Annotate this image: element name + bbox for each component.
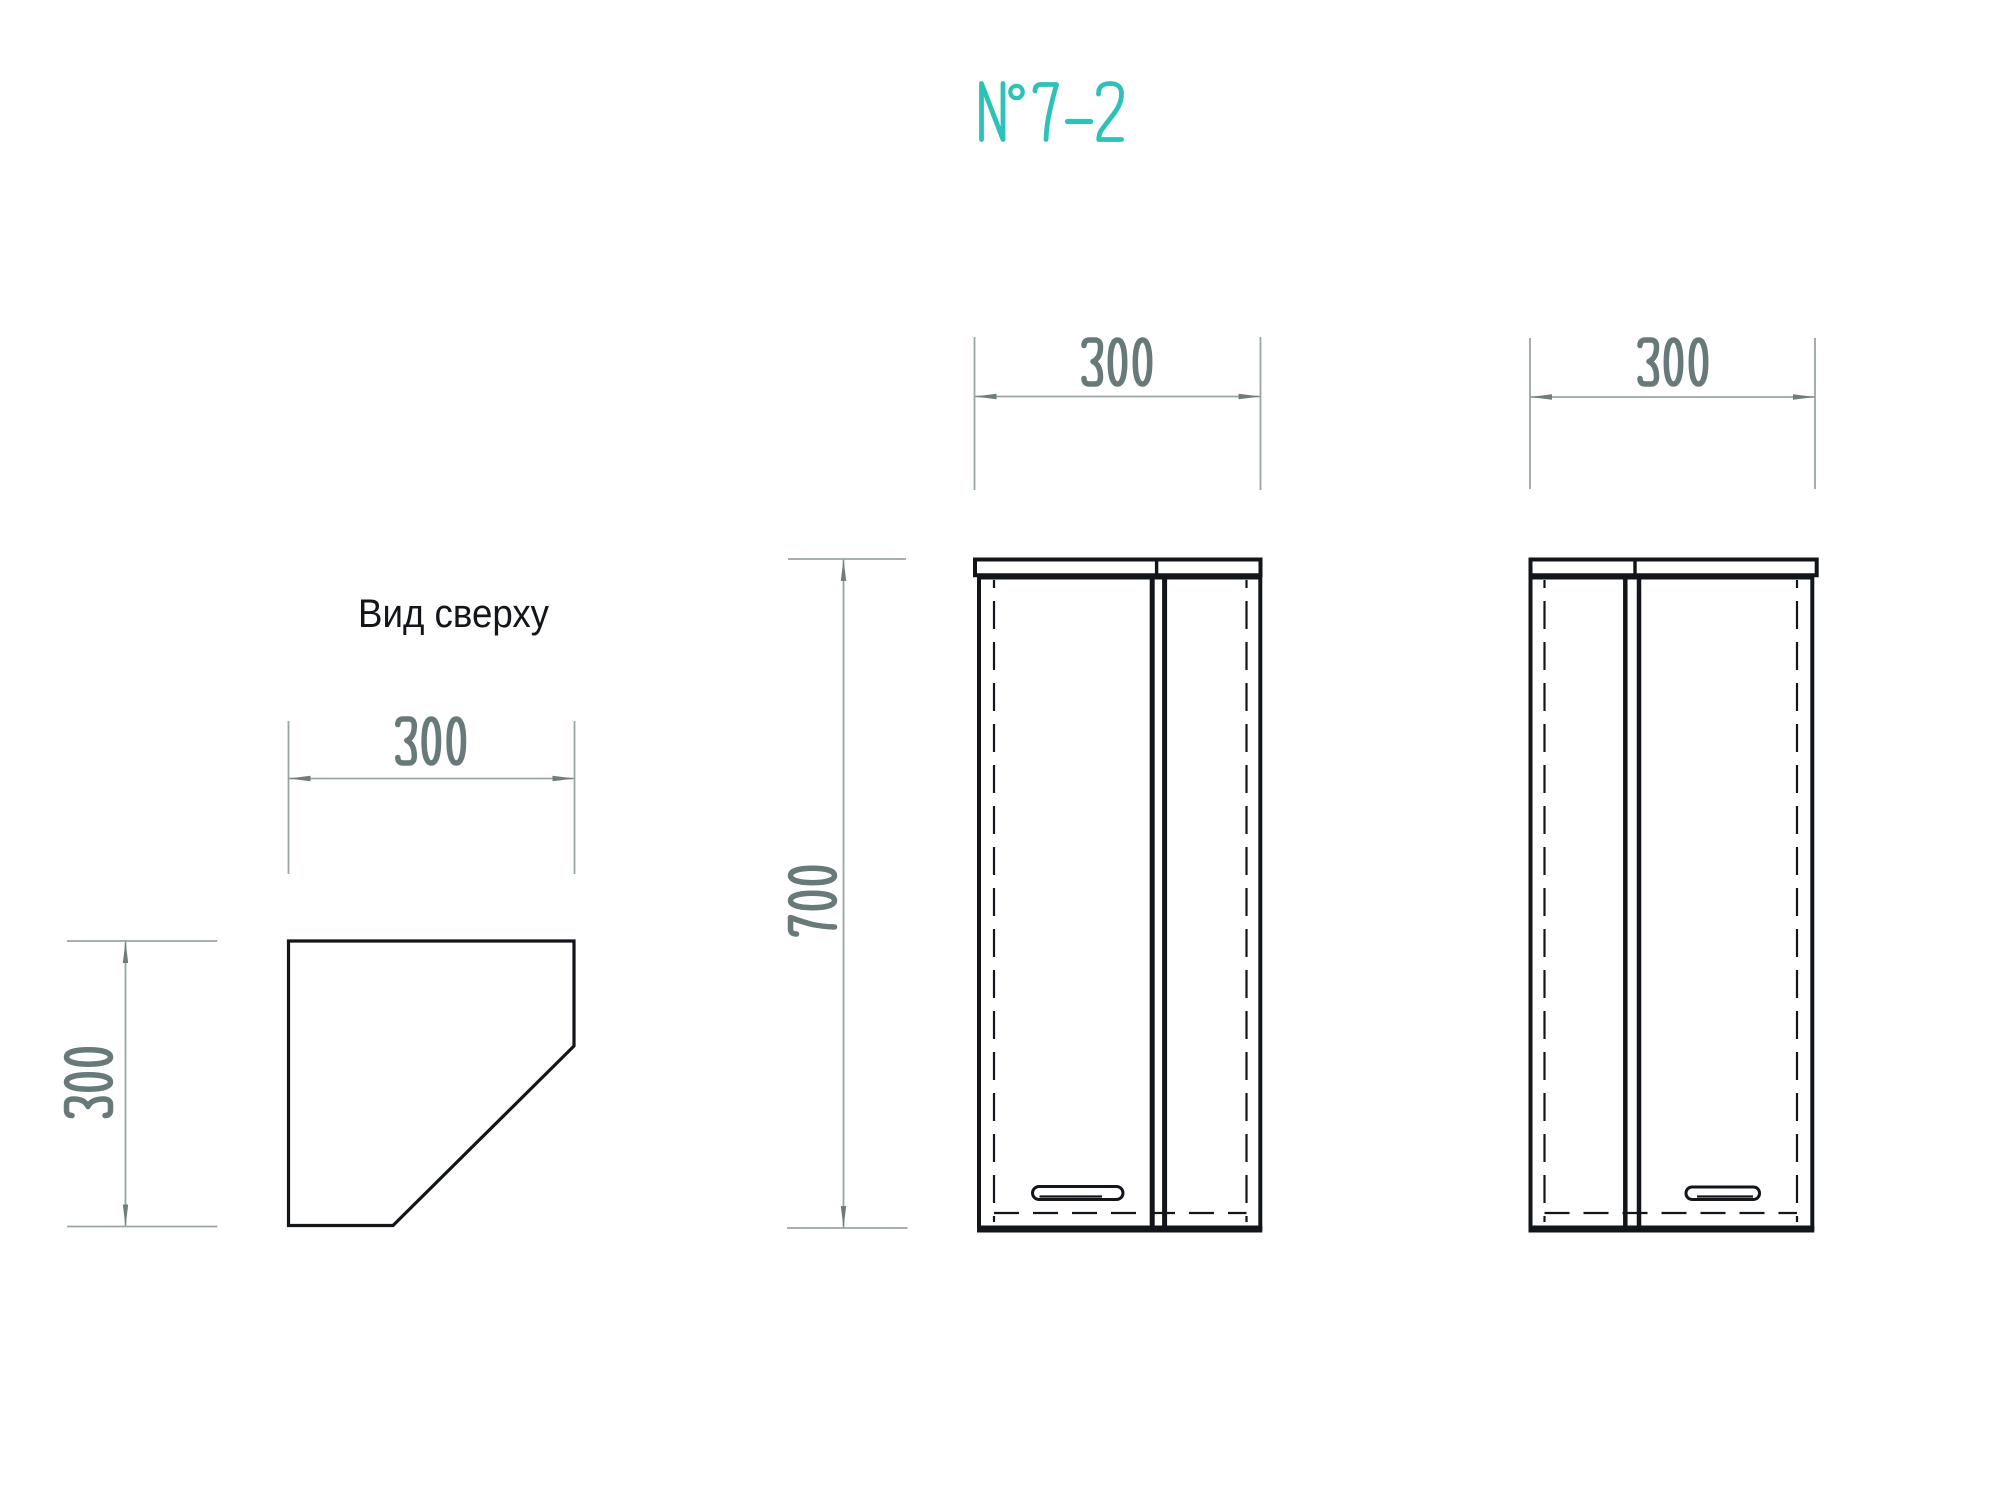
svg-text:Вид сверху: Вид сверху <box>358 592 549 636</box>
